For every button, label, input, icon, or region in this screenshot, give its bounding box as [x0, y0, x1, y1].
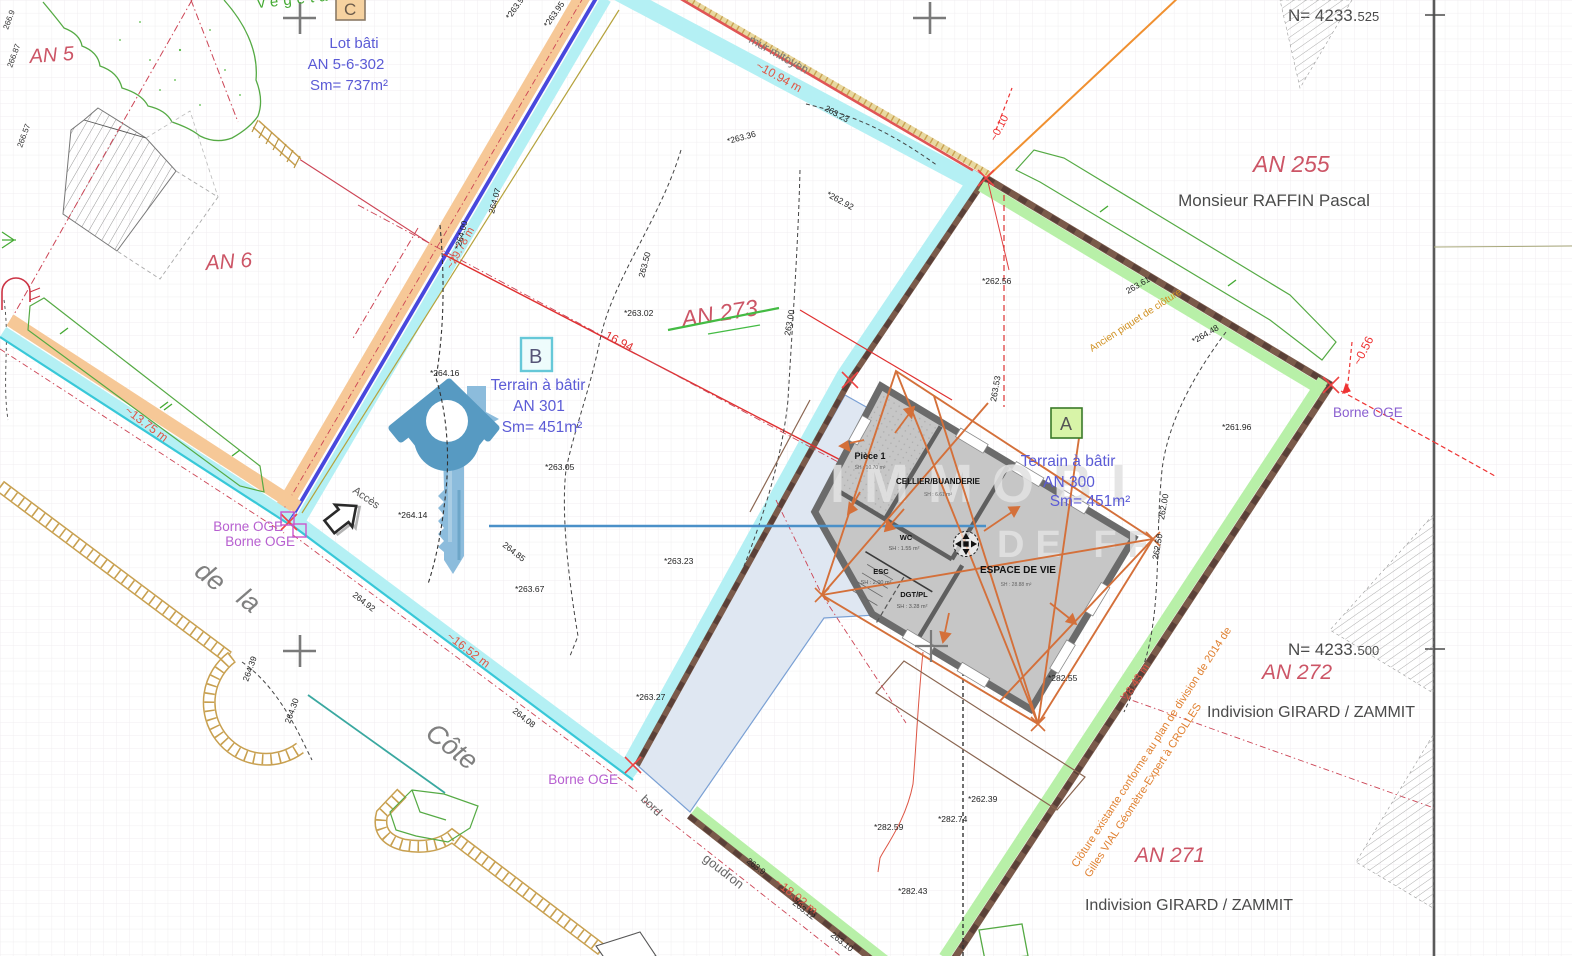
svg-text:DGT/PL: DGT/PL — [900, 590, 928, 599]
svg-text:Sm= 451m²: Sm= 451m² — [502, 419, 583, 436]
svg-text:SH : 1.55 m²: SH : 1.55 m² — [889, 546, 920, 552]
svg-text:Borne OGE: Borne OGE — [1333, 405, 1403, 420]
svg-text:AN 6: AN 6 — [203, 249, 253, 275]
svg-text:Sm= 451m²: Sm= 451m² — [1050, 493, 1131, 510]
svg-text:ESC: ESC — [873, 567, 889, 576]
svg-text:Sm= 737m²: Sm= 737m² — [310, 77, 388, 94]
svg-text:*263.27: *263.27 — [636, 692, 666, 702]
svg-text:*282.43: *282.43 — [898, 886, 928, 896]
svg-text:SH : 6.61 m²: SH : 6.61 m² — [924, 492, 952, 498]
svg-text:*282.59: *282.59 — [874, 822, 904, 832]
svg-text:ESPACE DE VIE: ESPACE DE VIE — [980, 565, 1056, 576]
svg-text:AN 271: AN 271 — [1133, 844, 1205, 867]
svg-text:Borne OGE: Borne OGE — [548, 772, 618, 787]
svg-text:C: C — [344, 0, 356, 19]
svg-text:AN 5: AN 5 — [28, 43, 76, 68]
svg-text:SH : 3.28 m²: SH : 3.28 m² — [897, 604, 928, 610]
svg-text:*282.55: *282.55 — [1048, 673, 1078, 683]
svg-text:WC: WC — [900, 533, 913, 542]
svg-text:AN 272: AN 272 — [1260, 661, 1332, 684]
svg-text:Lot bâti: Lot bâti — [329, 35, 378, 52]
svg-text:AN 255: AN 255 — [1251, 151, 1330, 177]
svg-text:AN 5-6-302: AN 5-6-302 — [308, 56, 385, 73]
svg-text:SH : 2.00 m²: SH : 2.00 m² — [861, 580, 892, 586]
svg-text:AN 301: AN 301 — [513, 398, 565, 415]
svg-text:Indivision GIRARD / ZAMMIT: Indivision GIRARD / ZAMMIT — [1085, 897, 1293, 914]
svg-text:*263.02: *263.02 — [624, 308, 654, 318]
svg-text:Monsieur RAFFIN Pascal: Monsieur RAFFIN Pascal — [1178, 191, 1370, 210]
svg-text:*263.05: *263.05 — [545, 462, 575, 472]
svg-text:Indivision GIRARD / ZAMMIT: Indivision GIRARD / ZAMMIT — [1207, 704, 1415, 721]
svg-text:*263.23: *263.23 — [664, 556, 694, 566]
svg-text:*282.74: *282.74 — [938, 814, 968, 824]
svg-text:*261.96: *261.96 — [1222, 422, 1252, 432]
svg-text:AN 300: AN 300 — [1043, 474, 1095, 491]
svg-text:*263.67: *263.67 — [515, 584, 545, 594]
svg-text:Terrain à bâtir: Terrain à bâtir — [1021, 453, 1116, 470]
svg-text:Terrain à bâtir: Terrain à bâtir — [491, 377, 586, 394]
svg-text:*262.39: *262.39 — [968, 794, 998, 804]
svg-text:*264.16: *264.16 — [430, 368, 460, 378]
svg-text:A: A — [1060, 414, 1072, 434]
svg-text:*264.14: *264.14 — [398, 510, 428, 520]
svg-text:Borne OGE: Borne OGE — [213, 519, 283, 534]
svg-text:SH : 10.70 m²: SH : 10.70 m² — [855, 465, 886, 471]
svg-text:SH : 28.88 m²: SH : 28.88 m² — [1001, 582, 1032, 588]
svg-text:Borne OGE: Borne OGE — [225, 534, 295, 549]
svg-text:CELLIER/BUANDERIE: CELLIER/BUANDERIE — [896, 477, 981, 486]
svg-text:*262.56: *262.56 — [982, 276, 1012, 286]
svg-text:B: B — [529, 346, 542, 368]
svg-text:Pièce 1: Pièce 1 — [854, 451, 885, 461]
